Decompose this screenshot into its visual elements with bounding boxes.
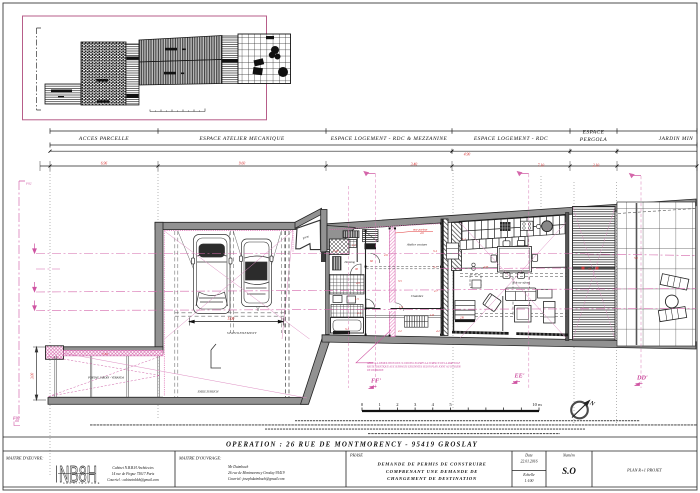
svg-text:1.9: 1.9 xyxy=(399,305,403,309)
svg-text:7.10: 7.10 xyxy=(538,164,545,168)
svg-text:CHANGEMENT DE DESTINATION: CHANGEMENT DE DESTINATION xyxy=(387,476,477,481)
svg-text:90: 90 xyxy=(355,267,359,271)
svg-text:1.1: 1.1 xyxy=(462,237,466,241)
svg-text:2.0: 2.0 xyxy=(356,281,360,285)
svg-text:6.96: 6.96 xyxy=(101,162,108,166)
svg-text:Courriel : cabinetnbbh@gmail.c: Courriel : cabinetnbbh@gmail.com xyxy=(107,478,159,482)
svg-text:MAITRE D'ŒUVRE:: MAITRE D'ŒUVRE: xyxy=(5,456,44,461)
svg-text:Dressing: Dressing xyxy=(344,260,356,264)
svg-text:2.7: 2.7 xyxy=(434,289,438,293)
svg-text:2B: 2B xyxy=(460,316,464,320)
svg-text:5.9: 5.9 xyxy=(634,256,638,260)
svg-text:Cabinet N.B.B.H Architectes: Cabinet N.B.B.H Architectes xyxy=(112,466,154,470)
svg-text:Date: Date xyxy=(524,454,533,458)
svg-text:1.5: 1.5 xyxy=(355,297,359,301)
svg-text:F02: F02 xyxy=(13,416,20,421)
svg-text:ESPACE LOGEMENT - RDC & MEZZAN: ESPACE LOGEMENT - RDC & MEZZANINE xyxy=(330,136,448,142)
svg-text:Mr Daimbach: Mr Daimbach xyxy=(227,465,248,469)
svg-text:60: 60 xyxy=(370,259,374,263)
svg-text:S.O: S.O xyxy=(562,466,576,476)
svg-text:ESPACE ATELIER MECANIQUE: ESPACE ATELIER MECANIQUE xyxy=(198,136,284,142)
svg-text:EE': EE' xyxy=(514,373,525,380)
svg-text:2.10: 2.10 xyxy=(593,164,600,168)
svg-text:3.1: 3.1 xyxy=(345,327,349,331)
svg-text:Numéro: Numéro xyxy=(562,454,575,458)
svg-text:1:100: 1:100 xyxy=(525,479,534,483)
svg-text:DEMANDE DE PERMIS DE CONSTRUIR: DEMANDE DE PERMIS DE CONSTRUIRE xyxy=(376,462,486,467)
svg-text:3.5: 3.5 xyxy=(398,279,402,283)
svg-text:Chambre: Chambre xyxy=(411,294,424,298)
svg-text:3.40: 3.40 xyxy=(411,163,418,167)
svg-text:PERGOLA: PERGOLA xyxy=(579,137,608,143)
svg-text:EMILE ZUREICH: EMILE ZUREICH xyxy=(197,391,220,394)
svg-text:STATIONNEMENT: STATIONNEMENT xyxy=(227,331,257,335)
svg-text:OPERATION : 26 RUE DE MONTMO: OPERATION : 26 RUE DE MONTMORENCY - 9541… xyxy=(226,442,478,449)
svg-text:2.6: 2.6 xyxy=(384,253,388,257)
svg-text:DE DEMANDE: DE DEMANDE xyxy=(366,369,384,372)
svg-text:COMPRENANT UNE DEMANDE DE: COMPRENANT UNE DEMANDE DE xyxy=(386,469,478,474)
svg-text:ESPACE LOGEMENT - RDC: ESPACE LOGEMENT - RDC xyxy=(473,136,548,142)
svg-text:1.8: 1.8 xyxy=(430,313,434,317)
svg-text:73: 73 xyxy=(588,267,592,271)
svg-text:2.4: 2.4 xyxy=(357,311,361,315)
svg-text:5.00: 5.00 xyxy=(228,317,235,321)
svg-text:DD': DD' xyxy=(636,375,648,382)
svg-text:4.2: 4.2 xyxy=(436,329,440,333)
svg-text:F02: F02 xyxy=(25,182,32,186)
svg-text:1.2: 1.2 xyxy=(352,243,356,247)
svg-text:9.60: 9.60 xyxy=(239,162,246,166)
svg-text:2.10: 2.10 xyxy=(333,249,339,253)
svg-text:PHASE: PHASE xyxy=(349,453,363,458)
svg-text:14 rue de Firgue 75017 Paris: 14 rue de Firgue 75017 Paris xyxy=(112,472,155,476)
svg-text:4.6: 4.6 xyxy=(420,231,424,235)
svg-text:Echelle: Echelle xyxy=(522,473,535,477)
svg-text:5.1: 5.1 xyxy=(433,265,437,269)
svg-text:ACCES PARCELLE: ACCES PARCELLE xyxy=(78,136,129,142)
svg-text:ARCHITECTURE: ARCHITECTURE xyxy=(63,482,101,485)
svg-text:Atelier couture: Atelier couture xyxy=(406,243,428,247)
svg-text:JARDIN MIN: JARDIN MIN xyxy=(659,136,694,142)
svg-text:Courriel: josephdaimbach@gmail: Courriel: josephdaimbach@gmail.com xyxy=(228,477,285,481)
svg-text:PORTAIL JARDIN - VERANDA: PORTAIL JARDIN - VERANDA xyxy=(87,377,124,380)
svg-text:26 rue de Montmorency Groslay: 26 rue de Montmorency Groslay 95419 xyxy=(228,471,285,475)
svg-text:22.01.2016: 22.01.2016 xyxy=(520,460,537,464)
svg-text:ESPACE: ESPACE xyxy=(582,130,605,136)
svg-text:2.2: 2.2 xyxy=(398,329,402,333)
svg-text:3.4: 3.4 xyxy=(433,249,437,253)
svg-text:4.90: 4.90 xyxy=(464,153,471,157)
svg-text:FF': FF' xyxy=(371,378,381,385)
svg-text:4.35: 4.35 xyxy=(483,265,489,269)
svg-text:3.00: 3.00 xyxy=(31,373,35,379)
svg-text:PLAN R+1 PROJET: PLAN R+1 PROJET xyxy=(626,468,662,473)
svg-text:MAITRE D'OUVRAGE:: MAITRE D'OUVRAGE: xyxy=(178,456,222,461)
svg-text:7.10: 7.10 xyxy=(102,352,108,356)
svg-text:10 m: 10 m xyxy=(532,402,542,407)
